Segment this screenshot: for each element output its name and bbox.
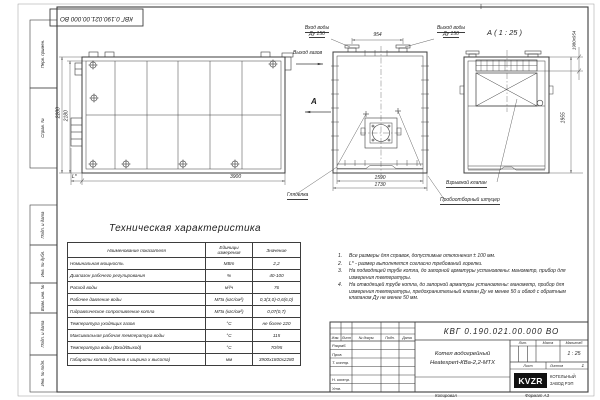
stamp-col-doc: № докум. [352, 334, 381, 341]
row-value: 0,07(0,7) [253, 306, 301, 318]
title-block-doc-number: КВГ 0.190.021.00.000 ВО [415, 322, 588, 340]
row-value: 40-100 [253, 270, 301, 282]
note-number: 1. [338, 253, 342, 260]
note-text: На отводящей трубе котла, до запорной ар… [349, 282, 566, 301]
tech-table-header-row: Наименование показателя Единицы измерени… [68, 243, 301, 258]
view-a-letter: А [311, 98, 317, 107]
company-name: КОТЕЛЬНЫЙ ЗАВОД РЭП [550, 374, 576, 387]
note-text: L* - размер выполняется согласно требова… [349, 261, 483, 267]
stamp-col-sign: Подп. [381, 334, 399, 341]
note-number: 4. [338, 282, 342, 289]
format-label: Формат А3 [525, 393, 549, 398]
dim-954: 954 [369, 33, 386, 39]
sheets-cell: Листов 1 [546, 362, 588, 369]
row-name: Габариты котла (длинна х ширина х высота… [68, 354, 206, 366]
note-number: 2. [338, 261, 342, 268]
water-inlet-label: Вход воды Ду 150 [300, 26, 334, 37]
row-value: не более 220 [253, 318, 301, 330]
tech-col-parameter: Наименование показателя [68, 243, 206, 258]
stamp-col-list: Лист [341, 334, 352, 341]
stamp-row-approved: Утв. [332, 386, 341, 391]
company-name-line1: КОТЕЛЬНЫЙ [550, 374, 576, 381]
dim-2180: 2180 [64, 101, 70, 131]
water-outlet-line2: Ду 150 [443, 31, 459, 39]
table-row: Диапазон рабочего регулирования%40-100 [68, 270, 301, 282]
dim-1955: 1955 [561, 103, 567, 133]
row-value: 0,3(3,0)-0,6(6,0) [253, 294, 301, 306]
sampling-fitting-label: Пробоотборный штуцер [440, 198, 500, 205]
note-2: 2.L* - размер выполняется согласно требо… [338, 261, 584, 268]
row-unit: % [206, 270, 253, 282]
tech-table: Наименование показателя Единицы измерени… [67, 242, 301, 366]
title-block-product: Котел водогрейный Heatexpert-КВа-2,2-МТХ [415, 340, 510, 377]
inverted-doc-number: КВГ 0.190.021.00.000 ВО [50, 9, 143, 26]
stamp-row-developed: Разраб. [332, 343, 346, 348]
gas-outlet-label: Выход газов [293, 51, 322, 57]
table-row: Температура воды (Вход/Выход)°С70/95 [68, 342, 301, 354]
row-unit: МПа (кгс/см²) [206, 306, 253, 318]
row-unit: м³/ч [206, 282, 253, 294]
margin-first-use: Перв. примен. [38, 24, 48, 84]
row-unit: °С [206, 318, 253, 330]
table-row: Расход водым³/ч76 [68, 282, 301, 294]
row-unit: °С [206, 342, 253, 354]
tech-col-value: Значение [253, 243, 301, 258]
row-name: Гидравлическое сопротивление котла [68, 306, 206, 318]
sight-glass-label: Гляделка [287, 193, 308, 200]
company-name-line2: ЗАВОД РЭП [550, 381, 576, 388]
dim-1980x954: 1980х954 [573, 23, 578, 57]
stamp-row-ncontrol: Н. контр. [332, 377, 350, 382]
copied-label: Копировал [435, 393, 457, 398]
note-3: 3.На подводящей трубе котла, до запорной… [338, 268, 584, 281]
row-name: Температура уходящих газов [68, 318, 206, 330]
margin-inv-orig: Инв. № подл. [38, 343, 48, 400]
water-outlet-label: Выход воды Ду 150 [432, 26, 470, 37]
stamp-row-tcontrol: Т. контр. [332, 360, 349, 365]
dim-1730: 1730 [371, 183, 389, 189]
sheets-label: Листов [550, 364, 563, 368]
section-title: А ( 1 : 25 ) [487, 29, 522, 37]
row-name: Рабочее давление воды [68, 294, 206, 306]
explosion-valve-label: Взрывной клапан [446, 181, 487, 188]
row-name: Диапазон рабочего регулирования [68, 270, 206, 282]
notes-list: 1.Все размеры для справок, допустимые от… [338, 253, 584, 303]
dim-l-star: L* [72, 175, 77, 181]
table-row: Температура уходящих газов°Сне более 220 [68, 318, 301, 330]
margin-ref-no: Справ. № [38, 98, 48, 158]
lit-label: Лит. [510, 340, 536, 346]
water-inlet-line2: Ду 150 [309, 31, 325, 39]
table-row: Габариты котла (длинна х ширина х высота… [68, 354, 301, 366]
row-unit: мм [206, 354, 253, 366]
table-row: Рабочее давление водыМПа (кгс/см²)0,3(3,… [68, 294, 301, 306]
sheet-label: Лист [510, 362, 546, 369]
table-row: Гидравлическое сопротивление котлаМПа (к… [68, 306, 301, 318]
note-4: 4.На отводящей трубе котла, до запорной … [338, 282, 584, 302]
stamp-col-date: Дата [399, 334, 415, 341]
row-unit: МПа (кгс/см²) [206, 294, 253, 306]
row-name: Расход воды [68, 282, 206, 294]
row-name: Температура воды (Вход/Выход) [68, 342, 206, 354]
row-value: 70/95 [253, 342, 301, 354]
tech-table-title: Техническая характеристика [95, 223, 275, 234]
mass-label: Масса [536, 340, 560, 346]
dim-3900: 3900 [230, 175, 241, 181]
note-text: На подводящей трубе котла, до запорной а… [349, 268, 566, 281]
table-row: Номинальная мощностьМВт2,2 [68, 258, 301, 270]
note-text: Все размеры для справок, допустимые откл… [349, 253, 495, 259]
row-name: Номинальная мощность [68, 258, 206, 270]
row-value: 115 [253, 330, 301, 342]
scale-value: 1 : 25 [560, 346, 588, 362]
table-row: Максимальная рабочая температура воды°С1… [68, 330, 301, 342]
row-value: 3900х1800х2280 [253, 354, 301, 366]
row-value: 76 [253, 282, 301, 294]
drawing-sheet: КВГ 0.190.021.00.000 ВО Перв. примен. Сп… [0, 0, 600, 400]
product-name-line2: Heatexpert-КВа-2,2-МТХ [430, 359, 495, 368]
note-number: 3. [338, 268, 342, 275]
stamp-row-checked: Пров. [332, 352, 343, 357]
kvzr-logo: KVZR [514, 373, 547, 388]
row-unit: °С [206, 330, 253, 342]
product-name-line1: Котел водогрейный [435, 350, 490, 359]
dim-2280: 2280 [56, 98, 62, 128]
dim-1590: 1590 [371, 176, 389, 182]
note-1: 1.Все размеры для справок, допустимые от… [338, 253, 584, 260]
row-name: Максимальная рабочая температура воды [68, 330, 206, 342]
tech-col-units: Единицы измерения [206, 243, 253, 258]
sheets-value: 1 [581, 363, 584, 368]
row-value: 2,2 [253, 258, 301, 270]
row-unit: МВт [206, 258, 253, 270]
stamp-col-izm: Изм. [330, 334, 341, 341]
